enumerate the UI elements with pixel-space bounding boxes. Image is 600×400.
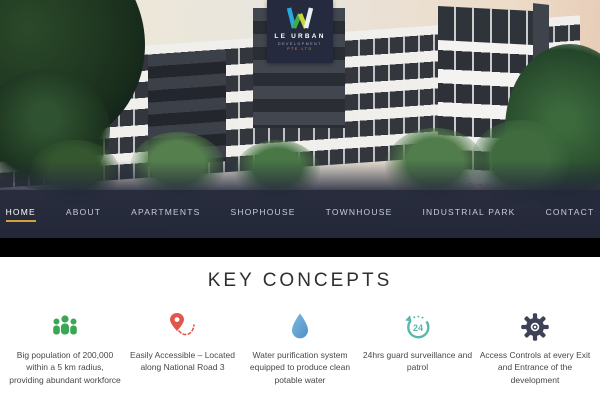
feature-text: Access Controls at every Exit and Entran… <box>479 349 591 386</box>
logo-subtitle: DEVELOPMENT <box>278 42 322 46</box>
24-badge: 24 <box>412 323 422 333</box>
divider-band <box>0 238 600 257</box>
main-navigation: HOME ABOUT APARTMENTS SHOPHOUSE TOWNHOUS… <box>0 190 600 238</box>
feature-text: Big population of 200,000 within a 5 km … <box>9 349 121 386</box>
site-logo[interactable]: LE URBAN DEVELOPMENT PTE LTD <box>267 0 333 63</box>
people-group-icon <box>48 312 82 342</box>
feature-accessible: Easily Accessible – Located along Nation… <box>127 308 239 386</box>
key-concepts-section: KEY CONCEPTS Big population of 200,000 w… <box>0 257 600 386</box>
gear-icon <box>520 312 550 342</box>
logo-subtitle2: PTE LTD <box>287 47 312 51</box>
section-title: KEY CONCEPTS <box>0 270 600 292</box>
water-drop-icon <box>288 312 312 342</box>
logo-title: LE URBAN <box>274 33 325 40</box>
nav-item-apartments[interactable]: APARTMENTS <box>131 207 200 222</box>
feature-text: Easily Accessible – Located along Nation… <box>127 349 239 374</box>
feature-text: 24hrs guard surveillance and patrol <box>362 349 474 374</box>
nav-item-home[interactable]: HOME <box>6 207 36 222</box>
feature-access-control: Access Controls at every Exit and Entran… <box>479 308 591 386</box>
nav-item-townhouse[interactable]: TOWNHOUSE <box>326 207 393 222</box>
location-pin-icon <box>166 312 200 342</box>
feature-water: Water purification system equipped to pr… <box>244 308 356 386</box>
feature-security-patrol: 24 24hrs guard surveillance and patrol <box>362 308 474 386</box>
nav-item-shophouse[interactable]: SHOPHOUSE <box>230 207 295 222</box>
nav-item-industrial-park[interactable]: INDUSTRIAL PARK <box>422 207 515 222</box>
feature-text: Water purification system equipped to pr… <box>244 349 356 386</box>
nav-item-contact[interactable]: CONTACT <box>546 207 595 222</box>
nav-item-about[interactable]: ABOUT <box>66 207 101 222</box>
hero-section: LE URBAN DEVELOPMENT PTE LTD HOME ABOUT … <box>0 0 600 238</box>
features-row: Big population of 200,000 within a 5 km … <box>9 308 591 386</box>
logo-mark-icon <box>282 5 318 31</box>
24-hour-icon: 24 <box>403 312 433 342</box>
feature-population: Big population of 200,000 within a 5 km … <box>9 308 121 386</box>
